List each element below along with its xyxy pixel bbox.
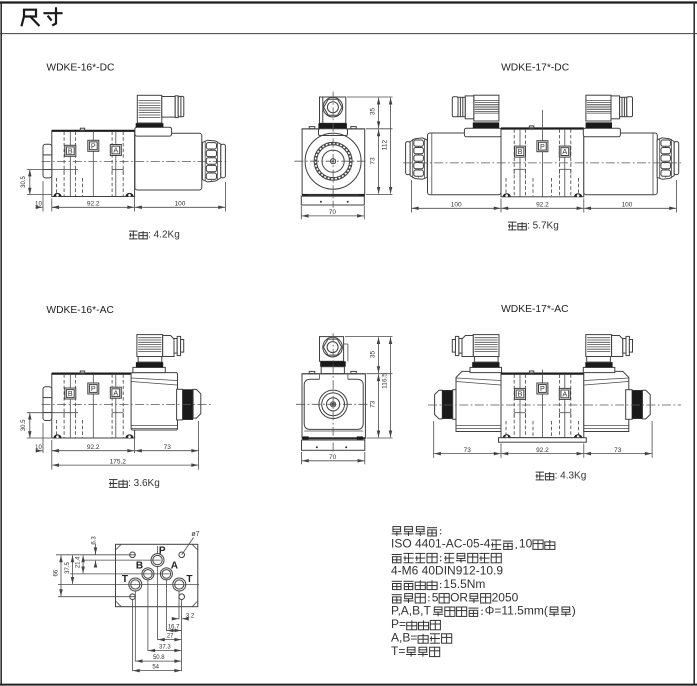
svg-text:T=: T=	[391, 644, 405, 658]
svg-text:37.5: 37.5	[65, 562, 71, 574]
svg-text:73: 73	[369, 400, 376, 408]
svg-text:B: B	[68, 146, 73, 155]
svg-text:P: P	[159, 546, 166, 557]
svg-text:B: B	[68, 389, 73, 398]
svg-text:Φ=11.5mm(: Φ=11.5mm(	[485, 604, 548, 618]
svg-text:70: 70	[329, 209, 337, 216]
svg-text:): )	[572, 604, 576, 618]
svg-text:A,B=: A,B=	[391, 631, 417, 645]
svg-text:WDKE-17*-AC: WDKE-17*-AC	[501, 304, 569, 315]
svg-text:35: 35	[369, 108, 376, 116]
svg-text:ISO 4401-AC-05-4: ISO 4401-AC-05-4	[391, 537, 491, 551]
svg-text:B: B	[518, 390, 523, 399]
svg-text:6.3: 6.3	[91, 536, 97, 545]
svg-text:54: 54	[152, 665, 159, 671]
svg-text:92.2: 92.2	[536, 202, 549, 209]
svg-text:T: T	[122, 574, 128, 585]
svg-text:A: A	[562, 390, 567, 399]
svg-text:30.5: 30.5	[21, 419, 27, 431]
svg-text:OR: OR	[450, 590, 468, 604]
svg-text:2050: 2050	[492, 590, 519, 604]
svg-text:A: A	[171, 561, 178, 572]
svg-text:P,A,B,T: P,A,B,T	[391, 604, 431, 618]
svg-text:T: T	[186, 574, 192, 585]
svg-text:B: B	[136, 561, 143, 572]
svg-text:73: 73	[369, 157, 376, 165]
svg-text:73: 73	[464, 447, 472, 454]
svg-text:73: 73	[164, 444, 172, 451]
svg-text:WDKE-16*-DC: WDKE-16*-DC	[46, 62, 115, 73]
svg-text:3.2: 3.2	[186, 613, 195, 619]
svg-text:4-M6 40DIN912-10.9: 4-M6 40DIN912-10.9	[391, 564, 503, 578]
svg-text:21.4: 21.4	[76, 556, 82, 568]
svg-text:WDKE-16*-AC: WDKE-16*-AC	[46, 305, 114, 316]
svg-text:112: 112	[381, 139, 388, 150]
svg-text:P=: P=	[391, 617, 406, 631]
svg-text:15.5Nm: 15.5Nm	[443, 577, 485, 591]
svg-text:P: P	[91, 384, 96, 393]
svg-text:10: 10	[35, 201, 42, 208]
svg-text:100: 100	[622, 202, 633, 209]
svg-text:92.2: 92.2	[536, 447, 549, 454]
svg-text:35: 35	[369, 351, 376, 359]
svg-text:30.5: 30.5	[21, 176, 27, 188]
svg-text:A: A	[113, 388, 118, 397]
svg-text:P: P	[540, 384, 545, 393]
svg-text:100: 100	[451, 202, 462, 209]
svg-text:27: 27	[167, 634, 174, 640]
svg-text:WDKE-17*-DC: WDKE-17*-DC	[501, 62, 570, 73]
svg-text:92.2: 92.2	[87, 201, 100, 208]
svg-text:A: A	[562, 147, 567, 156]
svg-text:P: P	[540, 142, 545, 151]
svg-text:: 5.7Kg: : 5.7Kg	[527, 221, 559, 232]
svg-text:A: A	[113, 146, 118, 155]
svg-text:: 3.6Kg: : 3.6Kg	[128, 478, 160, 489]
svg-text:5: 5	[432, 590, 439, 604]
svg-text:37.3: 37.3	[159, 645, 171, 651]
svg-text:10: 10	[519, 537, 533, 551]
svg-text:B: B	[518, 147, 523, 156]
svg-text:73: 73	[614, 447, 622, 454]
svg-text:: 4.2Kg: : 4.2Kg	[148, 230, 180, 241]
svg-text:92.2: 92.2	[87, 444, 100, 451]
svg-text:116.5: 116.5	[381, 373, 388, 389]
svg-text:66: 66	[54, 569, 60, 576]
svg-text:: 4.3Kg: : 4.3Kg	[555, 471, 587, 482]
svg-text:50.8: 50.8	[153, 655, 165, 661]
svg-text:ø7: ø7	[191, 531, 199, 538]
svg-text:70: 70	[329, 454, 337, 461]
svg-text:10: 10	[35, 444, 42, 451]
svg-text:100: 100	[175, 201, 186, 208]
svg-text:P: P	[91, 141, 96, 150]
svg-text:175.2: 175.2	[110, 458, 127, 465]
svg-text:16.7: 16.7	[168, 625, 180, 631]
